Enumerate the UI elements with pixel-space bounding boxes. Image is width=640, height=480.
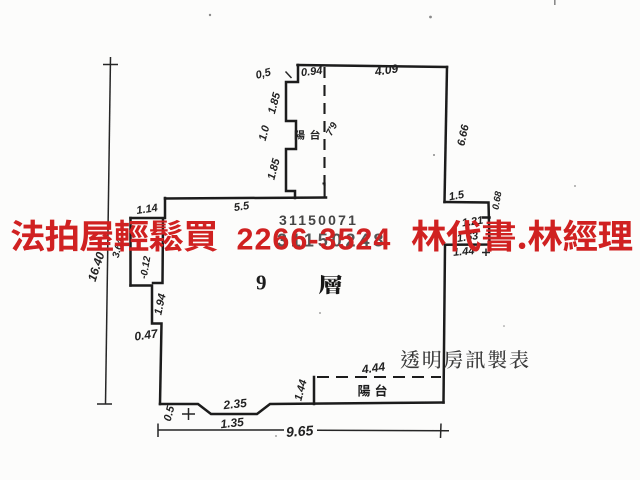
svg-text:7′9: 7′9 (324, 120, 340, 137)
svg-text:0.5: 0.5 (162, 404, 178, 423)
svg-text:0,5: 0,5 (254, 66, 273, 82)
svg-text:5.5: 5.5 (233, 200, 251, 214)
svg-text:1.94: 1.94 (152, 293, 168, 316)
svg-text:1.0: 1.0 (257, 123, 273, 142)
svg-text:1.14: 1.14 (136, 202, 159, 217)
svg-text:0.47: 0.47 (133, 326, 159, 343)
svg-text:1.85: 1.85 (266, 90, 283, 115)
svg-text:2266-3524: 2266-3524 (237, 223, 392, 257)
svg-text:1.85: 1.85 (266, 156, 283, 181)
svg-text:1.44: 1.44 (293, 378, 310, 402)
svg-text:6.66: 6.66 (455, 123, 471, 147)
svg-text:2.35: 2.35 (222, 396, 248, 413)
svg-text:4.09: 4.09 (373, 61, 399, 78)
svg-text:1.35: 1.35 (220, 415, 245, 431)
svg-text:9.65: 9.65 (286, 422, 315, 440)
svg-text:4.44: 4.44 (360, 359, 386, 376)
svg-text:0.68: 0.68 (491, 190, 505, 211)
svg-text:9: 9 (256, 271, 267, 295)
svg-text:16.40: 16.40 (85, 250, 108, 283)
svg-text:-0.12: -0.12 (139, 255, 154, 280)
svg-text:0.94: 0.94 (300, 65, 323, 79)
